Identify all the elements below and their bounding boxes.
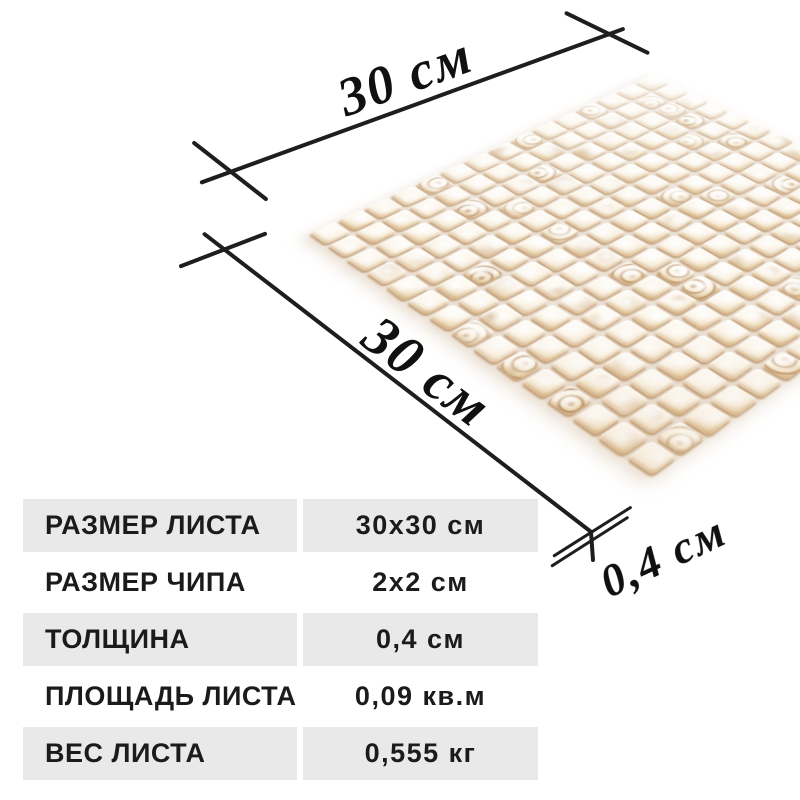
spec-row: РАЗМЕР ЛИСТА 30x30 см <box>23 499 538 552</box>
dimension-label-width: 30 см <box>329 23 480 129</box>
product-dimension-diagram: 30 см 30 см 0,4 см РАЗМЕР ЛИСТА 30x30 см… <box>0 0 800 800</box>
spec-row: ВЕС ЛИСТА 0,555 кг <box>23 727 538 780</box>
dimension-tick <box>178 231 267 268</box>
spec-value-cell: 30x30 см <box>303 499 538 552</box>
spec-row: РАЗМЕР ЧИПА 2x2 см <box>23 556 538 609</box>
dimension-tick <box>191 140 268 202</box>
spec-label-cell: РАЗМЕР ЧИПА <box>23 556 297 609</box>
dimension-tick <box>564 11 650 56</box>
thickness-tick <box>589 530 595 562</box>
spec-label-cell: ВЕС ЛИСТА <box>23 727 297 780</box>
spec-value-cell: 0,555 кг <box>303 727 538 780</box>
mosaic-sheet <box>310 75 800 476</box>
spec-row: ПЛОЩАДЬ ЛИСТА 0,09 кв.м <box>23 670 538 723</box>
spec-value-cell: 0,4 см <box>303 613 538 666</box>
spec-label-cell: ПЛОЩАДЬ ЛИСТА <box>23 670 297 723</box>
spec-value-cell: 2x2 см <box>303 556 538 609</box>
spec-label-cell: РАЗМЕР ЛИСТА <box>23 499 297 552</box>
spec-row: ТОЛЩИНА 0,4 см <box>23 613 538 666</box>
spec-table: РАЗМЕР ЛИСТА 30x30 см РАЗМЕР ЧИПА 2x2 см… <box>23 499 538 780</box>
spec-value-cell: 0,09 кв.м <box>303 670 538 723</box>
spec-label-cell: ТОЛЩИНА <box>23 613 297 666</box>
